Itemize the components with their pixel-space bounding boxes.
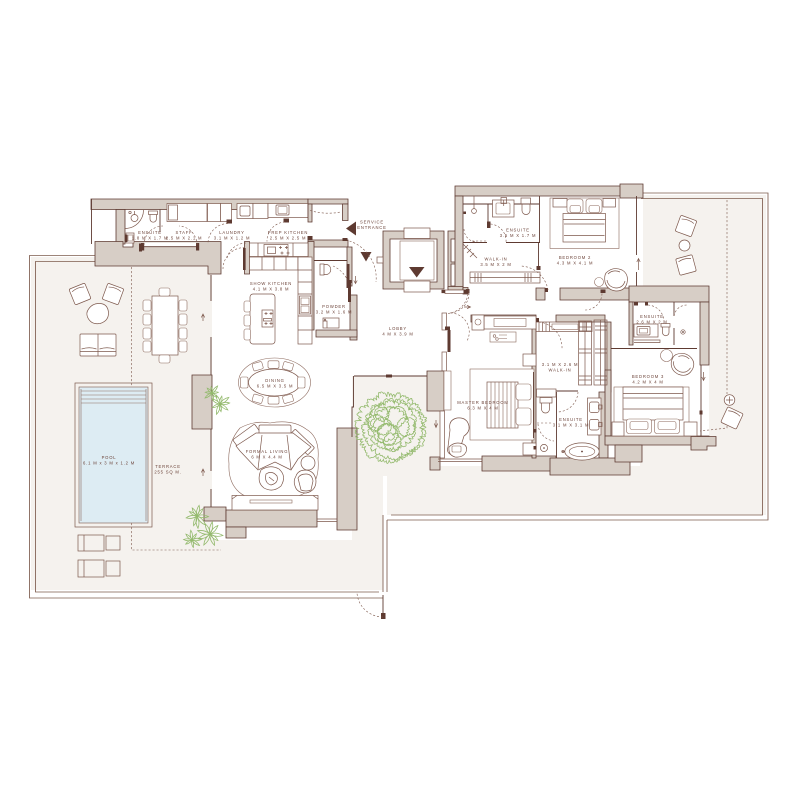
svg-text:STAFF: STAFF <box>176 230 193 235</box>
svg-text:4 M X 3.9 M: 4 M X 3.9 M <box>382 332 413 337</box>
svg-text:4.2 M X 4 M: 4.2 M X 4 M <box>632 380 663 385</box>
svg-text:3.5 M X 1.7 M: 3.5 M X 1.7 M <box>500 233 536 238</box>
svg-text:LAUNDRY: LAUNDRY <box>219 230 245 235</box>
svg-text:MASTER BEDROOM: MASTER BEDROOM <box>457 400 508 405</box>
svg-text:6.3 M X 4 M: 6.3 M X 4 M <box>467 406 498 411</box>
svg-text:3.1 M X 3.1 M: 3.1 M X 3.1 M <box>553 423 589 428</box>
svg-text:ENTRANCE: ENTRANCE <box>357 225 386 230</box>
svg-text:WALK-IN: WALK-IN <box>485 257 508 262</box>
svg-text:1.8 M X 1.7 M: 1.8 M X 1.7 M <box>132 236 168 241</box>
svg-text:ENSUITE: ENSUITE <box>559 417 583 422</box>
svg-text:2.5 M X 2.5 M: 2.5 M X 2.5 M <box>270 236 306 241</box>
svg-text:BEDROOM 3: BEDROOM 3 <box>632 374 664 379</box>
svg-text:6.1 M x 3 M x 1.2 M: 6.1 M x 3 M x 1.2 M <box>83 461 135 466</box>
svg-text:FORMAL LIVING: FORMAL LIVING <box>246 449 289 454</box>
svg-text:TERRACE: TERRACE <box>155 464 181 469</box>
svg-text:POWDER: POWDER <box>322 304 346 309</box>
svg-text:LOBBY: LOBBY <box>389 326 407 331</box>
svg-text:SERVICE: SERVICE <box>360 220 384 225</box>
svg-text:PREP KITCHEN: PREP KITCHEN <box>268 230 308 235</box>
svg-text:ENSUITE: ENSUITE <box>506 228 530 233</box>
svg-text:4.1 M X 3.8 M: 4.1 M X 3.8 M <box>253 287 289 292</box>
svg-text:2.5 M X 2.1 M: 2.5 M X 2.1 M <box>166 236 202 241</box>
svg-text:BEDROOM 2: BEDROOM 2 <box>559 255 591 260</box>
svg-text:6 M X 4.4 M: 6 M X 4.4 M <box>251 455 282 460</box>
svg-text:3.1 M X 2.6 M: 3.1 M X 2.6 M <box>542 362 578 367</box>
svg-text:255 SQ M.: 255 SQ M. <box>154 470 181 475</box>
svg-text:DINING: DINING <box>265 378 284 383</box>
svg-text:3.2 M X 1.6 M: 3.2 M X 1.6 M <box>316 310 352 315</box>
svg-text:2.6 M X 2 M: 2.6 M X 2 M <box>636 320 667 325</box>
svg-text:3.1 M X 1.2 M: 3.1 M X 1.2 M <box>214 236 250 241</box>
svg-text:WALK-IN: WALK-IN <box>549 368 572 373</box>
svg-text:3.5 M X 2 M: 3.5 M X 2 M <box>480 262 511 267</box>
svg-text:ENSUITE: ENSUITE <box>640 314 664 319</box>
svg-text:POOL: POOL <box>102 455 117 460</box>
svg-text:SHOW KITCHEN: SHOW KITCHEN <box>250 281 292 286</box>
svg-text:ENSUITE: ENSUITE <box>138 230 162 235</box>
svg-text:4.3 M X 4.1 M: 4.3 M X 4.1 M <box>557 261 593 266</box>
svg-text:6.5 M X 3.5 M: 6.5 M X 3.5 M <box>257 384 293 389</box>
